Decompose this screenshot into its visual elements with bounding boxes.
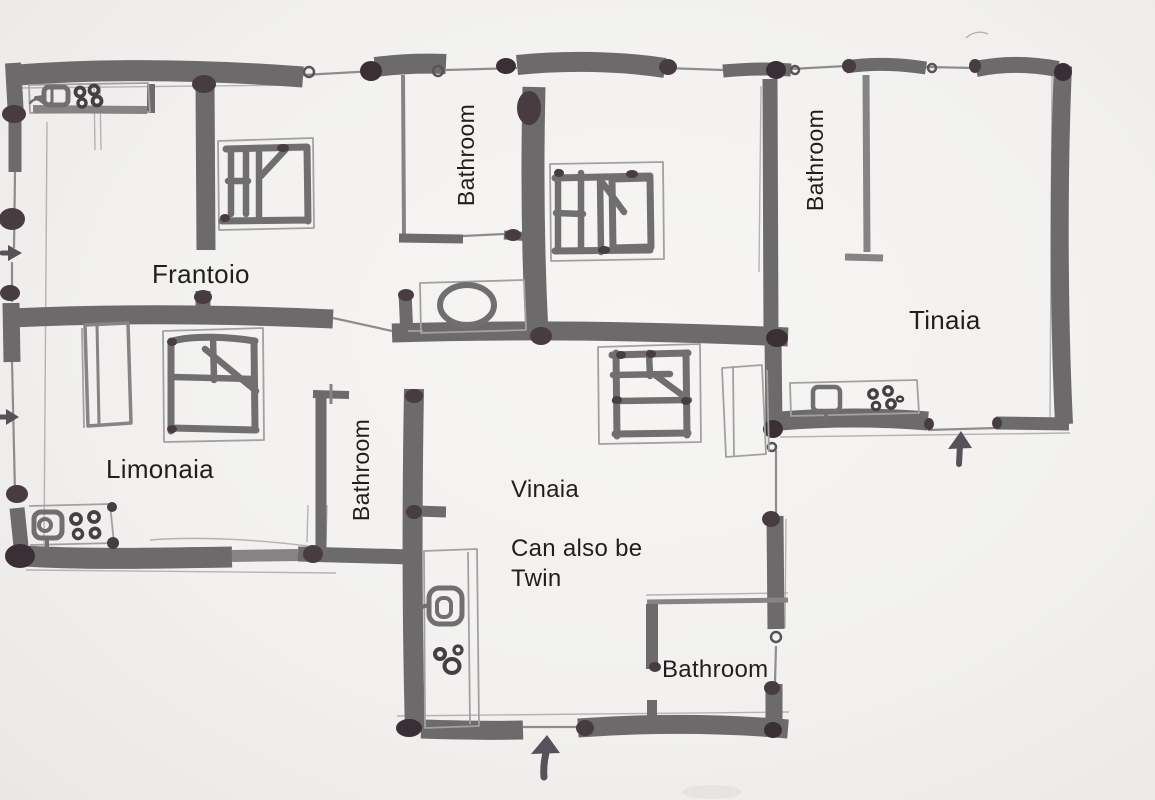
burner	[887, 400, 895, 408]
pencil-line	[759, 86, 761, 272]
ink-blob	[2, 105, 26, 123]
bidet-icon	[454, 646, 462, 654]
wardrobe-outline	[722, 365, 766, 457]
ink-blob	[107, 502, 117, 512]
bidet-icon	[435, 649, 445, 659]
pencil-line	[780, 433, 1070, 437]
burner	[76, 88, 85, 97]
scan-smudge	[682, 785, 742, 799]
label-bathroom-middle: Bathroom	[348, 419, 374, 521]
ink-blob	[646, 350, 656, 358]
burner	[89, 512, 99, 522]
ink-blob	[0, 208, 25, 230]
hob-icon	[71, 512, 100, 539]
wall-top	[517, 62, 665, 68]
ink-blob	[107, 537, 119, 549]
wardrobe-door-line	[97, 324, 99, 424]
opening-line	[928, 428, 996, 430]
bed-pillows	[556, 172, 583, 251]
fixture-outline	[424, 549, 479, 728]
opening-line	[775, 646, 776, 683]
pencil-line	[785, 519, 786, 628]
ink-blob	[220, 214, 230, 222]
ink-blob	[398, 289, 414, 301]
counter-edge	[33, 109, 147, 110]
ink-blob	[194, 290, 212, 304]
wall-center-vertical	[773, 338, 774, 431]
sink-basin	[437, 598, 451, 617]
ink-blob	[6, 485, 28, 503]
ink-blob	[659, 59, 677, 75]
ink-blob	[762, 511, 780, 527]
opening-line	[12, 362, 15, 492]
burner	[872, 402, 880, 410]
ink-blob	[505, 229, 521, 241]
burner	[91, 529, 100, 538]
ink-blob	[496, 58, 516, 74]
toilet-icon	[445, 659, 460, 673]
bed-vinaia	[598, 344, 701, 444]
wall-bath-topright-foot	[845, 257, 883, 258]
hob-icon	[76, 86, 102, 108]
burner	[897, 397, 903, 402]
pencil-mark	[966, 32, 988, 38]
wall-frantoio-bedroom	[205, 82, 206, 250]
burner	[93, 97, 102, 106]
wall-bath-middle-right	[413, 389, 415, 732]
wardrobe-sketch-line	[82, 328, 84, 428]
sink-icon	[813, 387, 840, 411]
label-bathroom-top-middle: Bathroom	[453, 104, 479, 206]
ink-blob	[554, 169, 564, 177]
ink-blob	[530, 327, 552, 345]
opening-line	[333, 318, 392, 331]
wardrobe-outline	[85, 323, 131, 426]
ink-blob	[0, 285, 20, 301]
ink-blob	[303, 545, 323, 563]
sink-icon	[44, 87, 68, 105]
wall-mid-left	[10, 315, 333, 319]
ink-blob	[992, 417, 1002, 429]
toilet-icon	[440, 285, 494, 325]
ink-blob	[766, 329, 788, 347]
wall-top	[846, 64, 926, 68]
floor-plan-sheet: Frantoio Limonaia Vinaia Can also be Twi…	[0, 0, 1155, 800]
ink-blob	[626, 170, 638, 178]
wall-tinaia-bottom	[996, 423, 1069, 424]
ink-blob	[616, 351, 626, 359]
ink-blob	[842, 59, 856, 73]
floor-plan-drawing: Frantoio Limonaia Vinaia Can also be Twi…	[0, 0, 1155, 800]
entrance-arrow-left-upper-icon	[2, 245, 22, 261]
ink-blob	[167, 425, 177, 433]
label-vinaia: Vinaia	[511, 476, 579, 503]
burner	[869, 390, 877, 398]
entrance-arrow-tinaia-icon	[948, 431, 972, 464]
bed-blanket	[612, 178, 651, 248]
ink-blob	[764, 681, 780, 695]
wall-limonaia-bottom-light	[232, 555, 298, 556]
hinge-mark	[771, 632, 781, 642]
ink-blob	[649, 662, 661, 672]
sink-tap	[36, 97, 44, 98]
sketch-line	[468, 552, 470, 724]
ink-blob	[360, 61, 382, 81]
bed-pillows	[228, 151, 248, 214]
bed-fold	[259, 149, 286, 218]
ink-blob	[1054, 63, 1072, 81]
label-frantoio: Frantoio	[152, 259, 250, 289]
hinge-mark	[791, 66, 799, 74]
wall-bath-bottom-top	[647, 600, 788, 602]
wall-bottom	[421, 729, 523, 730]
pencil-line	[26, 570, 336, 573]
burner	[884, 387, 892, 395]
door-window-openings	[12, 66, 996, 727]
wall-right	[1060, 66, 1064, 424]
ink-blob	[406, 505, 422, 519]
ink-blob	[5, 544, 35, 568]
entrance-arrow-left-lower-icon	[0, 409, 19, 425]
opening-line	[463, 234, 504, 236]
sink-drain	[39, 519, 51, 531]
wall-left	[17, 508, 21, 546]
faucet-squiggle	[30, 99, 52, 104]
entrance-arrow-bottom-icon	[531, 735, 560, 777]
ink-blob	[277, 144, 289, 152]
ink-blob	[517, 91, 541, 125]
burner	[71, 514, 81, 524]
wall-top-right	[976, 65, 1058, 69]
bed-limonaia	[163, 328, 264, 442]
ink-blob	[167, 338, 177, 346]
bathroom-fixtures-bottom-middle	[421, 549, 479, 728]
label-bathroom-top-right: Bathroom	[802, 109, 828, 211]
wall-bath-topmid-bottom	[399, 238, 463, 239]
label-vinaia-note-line2: Twin	[511, 565, 562, 592]
bed-second-bedroom	[550, 162, 664, 261]
opening-line	[926, 67, 976, 68]
label-vinaia-note-line1: Can also be	[511, 535, 642, 562]
wall-bath-topright	[866, 75, 867, 252]
pencil-line	[397, 712, 789, 716]
wall-bottom	[578, 724, 788, 729]
ink-blob	[612, 396, 622, 404]
wardrobe-limonaia	[82, 323, 131, 428]
arrow-head	[948, 431, 972, 449]
sink-tap	[421, 605, 429, 607]
burner	[74, 530, 83, 539]
kitchen-frantoio	[29, 83, 150, 113]
wall-limonaia-bottom	[24, 556, 232, 558]
ink-blob	[576, 720, 594, 736]
wall-center-vertical	[775, 516, 776, 629]
ink-blob	[681, 397, 691, 405]
ink-blob	[764, 722, 782, 738]
pencil-line	[150, 538, 308, 546]
ink-blob	[405, 389, 423, 403]
arrow-head	[531, 735, 560, 754]
bed-frantoio	[218, 138, 314, 230]
bed-fold	[615, 375, 689, 401]
burner	[78, 99, 86, 107]
wall-bath-topmid-left	[403, 75, 404, 236]
pencil-line	[646, 593, 788, 595]
label-limonaia: Limonaia	[106, 454, 214, 484]
ink-blob	[766, 61, 786, 79]
ink-blob	[192, 75, 216, 93]
wardrobe-door-line	[733, 366, 734, 456]
ink-blob	[924, 418, 934, 430]
hob-icon	[869, 387, 903, 410]
label-bathroom-bottom: Bathroom	[662, 656, 768, 683]
ink-blob	[598, 246, 610, 254]
kitchen-limonaia	[29, 502, 119, 549]
wall-bedroom-divider	[533, 87, 537, 335]
wall-tinaia-bottom	[780, 418, 928, 421]
wall-top-left	[18, 71, 303, 77]
wardrobe-vinaia	[722, 365, 769, 457]
wall-center-vertical	[770, 79, 771, 338]
ink-blob	[969, 59, 981, 73]
label-tinaia: Tinaia	[909, 305, 981, 335]
pencil-line	[44, 122, 47, 548]
ink-blob	[396, 719, 422, 737]
